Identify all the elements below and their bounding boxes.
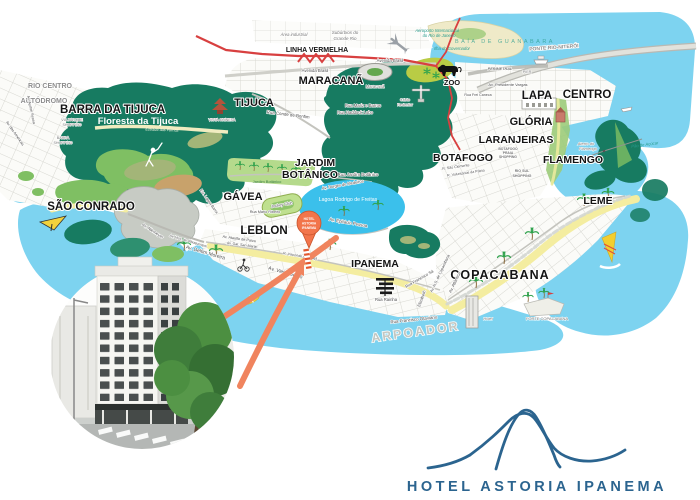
label-jardim-botanico-garden: Jardim Botânico [253,179,282,184]
label-suburbios-1: Subúrbios do [332,30,359,35]
label-suburbios-2: Grande Rio [333,36,357,41]
label-cristo-2: Redentor [397,103,413,107]
label-zoo: ZOO [444,78,460,87]
label-aeroporto-2: do Rio de Janeiro [423,33,456,38]
label-vista-chinesa: VISTA CHINESA [209,118,236,122]
label-aterro-2: Flamengo [579,146,598,151]
label-centro: CENTRO [563,89,612,101]
label-frei-caneca: Rua Frei Caneca [464,93,491,97]
label-copacabana: COPACABANA [450,268,549,282]
label-gloria: GLÓRIA [510,115,553,128]
label-avenida-brasil-2: Avenida Brasil [377,58,404,63]
label-cristo-1: Cristo [400,98,410,102]
label-flamengo: FLAMENGO [543,154,603,166]
logo-text: HOTEL ASTORIA IPANEMA [407,479,667,495]
label-linha-vermelha: LINHA VERMELHA [286,47,348,54]
label-haddock-lobo: Rua Haddock Lobo [337,110,374,115]
label-mariz-barros: Rua Mariz e Barros [345,103,381,108]
label-lagoa: Lagoa Rodrigo de Freitas [319,197,378,203]
pin-label-2: ASTORIA [302,222,317,226]
label-perimetral: PERIMETRAL [488,67,513,71]
label-botafogo-praia-3: SHOPPING [499,155,517,159]
label-laranjeiras: LARANJEIRAS [479,134,554,146]
label-sao-conrado: SÃO CONRADO [47,200,135,213]
label-via-parque-1: VIA PARQUE [61,118,83,122]
label-rio-centro: RIO CENTRO [28,83,73,90]
label-maracana-stadium: Maracanã [366,84,385,89]
mountain-logo-icon [428,410,625,469]
label-hotel-small: Hotel [483,316,492,321]
pin-label-1: HOTEL [304,217,315,221]
brand-logo: HOTEL ASTORIA IPANEMA [407,410,667,495]
label-barra-shopping-1: BARRA [57,136,70,140]
label-pier: PIER [523,70,532,74]
label-rua-rainha: Rua Rainha [375,297,398,302]
label-ipanema: IPANEMA [351,258,399,270]
label-forte-copacabana: FORTE COPACABANA [526,316,568,321]
label-jardim: JARDIM [295,157,336,169]
copacabana-tower [466,296,478,328]
label-floresta-da-tijuca: Floresta da Tijuca [98,116,179,127]
label-rio-sul-2: SHOPPING [513,174,532,178]
label-avenida-brasil: Avenida Brasil [302,68,329,73]
label-rio-sul-1: RIO SUL [515,169,530,173]
label-tijuca: TIJUCA [234,97,274,109]
label-via-parque-2: SHOPPING [63,123,82,127]
label-botanico: BOTÂNICO [282,168,338,181]
pin-label-3: IPANEMA [302,226,317,230]
label-area-industrial: Área industrial [280,32,309,37]
label-barra-shopping-2: SHOPPING [54,141,73,145]
label-botafogo: BOTAFOGO [433,152,493,164]
label-baia-guanabara: BAÍA DE GUANABARA [455,38,555,45]
hotel-map-image[interactable]: RIO CENTRO AUTÓDROMO BARRA DA TIJUCA Flo… [0,0,700,500]
label-mario-ribeiro: Rua Mário Ribeiro [250,210,281,214]
label-leme: LEME [583,195,612,207]
label-barra-da-tijuca: BARRA DA TIJUCA [60,104,165,116]
rio-map-illustration: RIO CENTRO AUTÓDROMO BARRA DA TIJUCA Flo… [0,0,700,500]
label-lapa: LAPA [522,90,552,102]
label-gavea: GÁVEA [223,190,262,203]
label-presidente-vargas: Av. Presidente Vargas [488,82,527,87]
label-rua-jardim-botanico: Rua Jardim Botânico [338,172,379,177]
label-leblon: LEBLON [240,225,287,237]
label-ilha-governador: Ilha do Governador [434,46,470,51]
label-maracana: MARACANÃ [299,74,364,87]
